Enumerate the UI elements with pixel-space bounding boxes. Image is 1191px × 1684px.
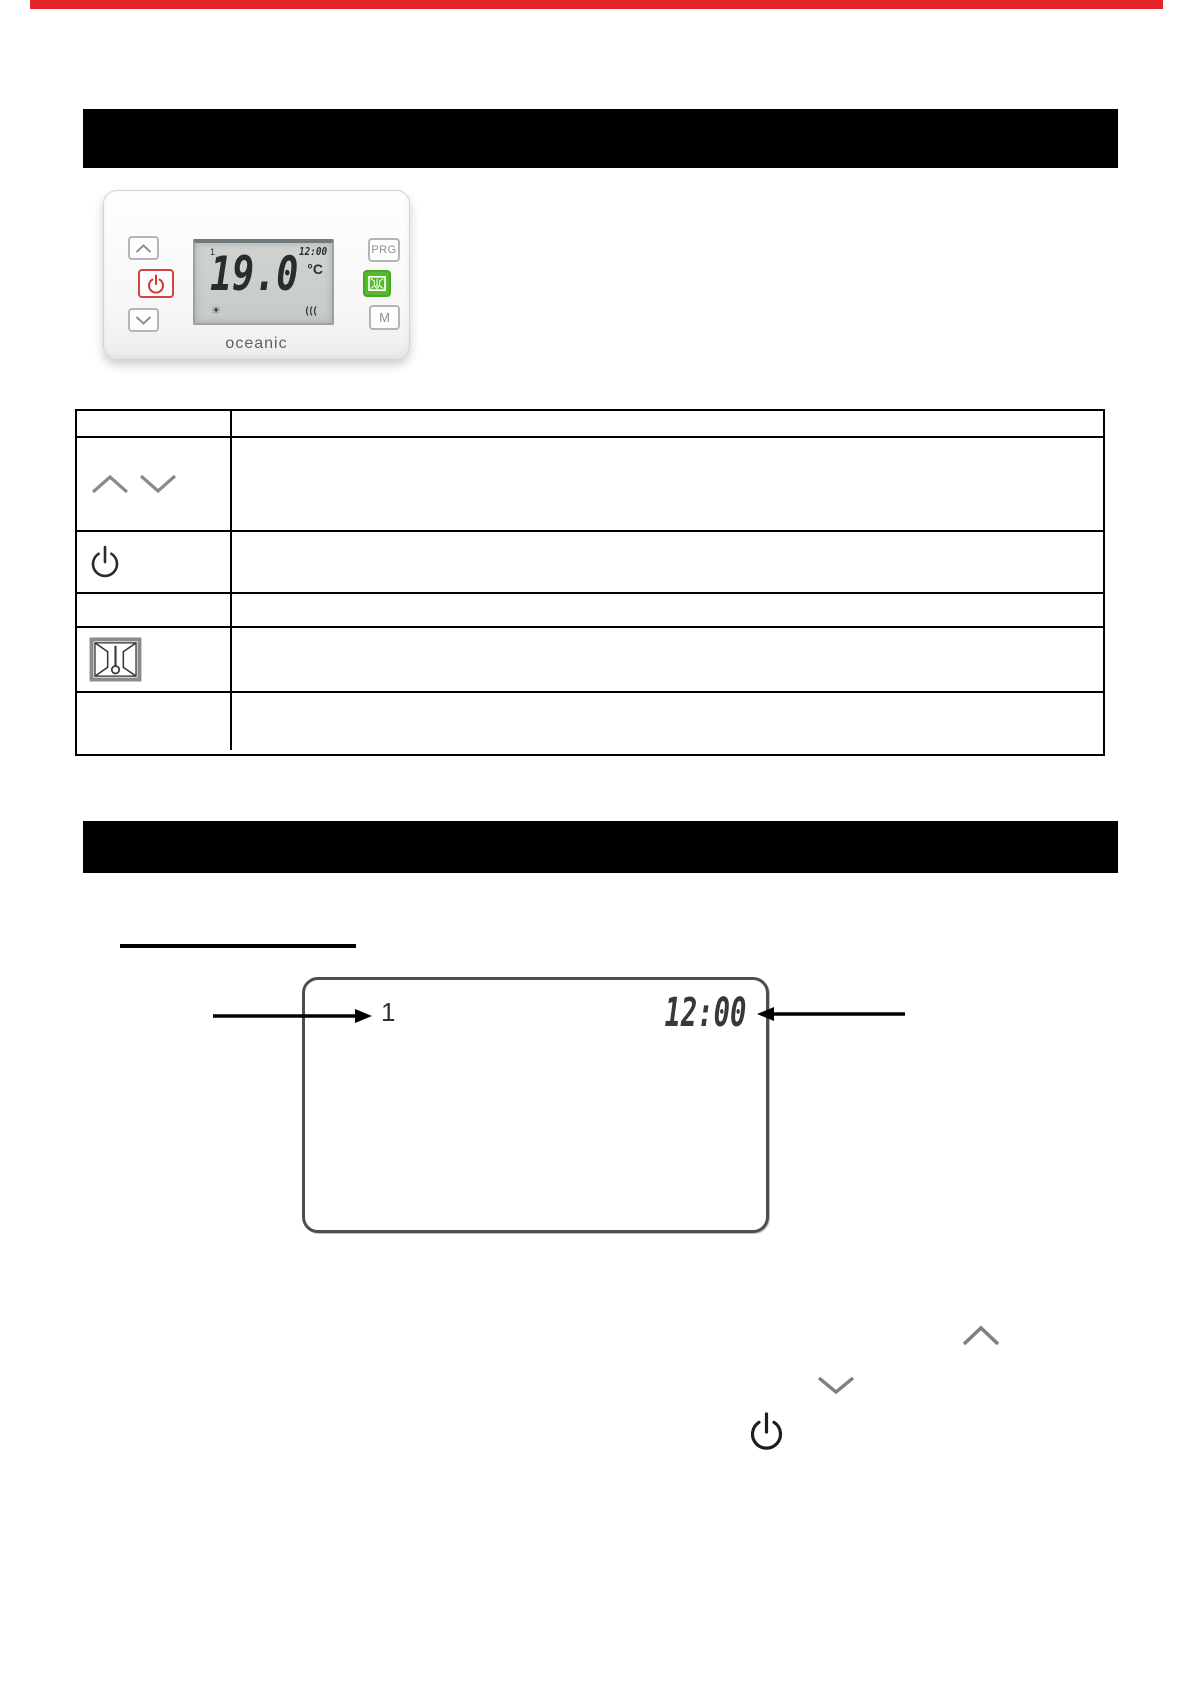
top-accent-bar	[30, 0, 1163, 9]
heating-indicator-icon	[305, 306, 318, 316]
table-row	[77, 438, 1103, 532]
device-down-button	[128, 308, 159, 332]
arrow-left-icon	[757, 1006, 905, 1022]
table-icon-cell	[77, 594, 232, 626]
thermostat-product-photo: 1 12:00 19.0 °C ☀ PRG M oceanic	[103, 190, 410, 360]
chevron-down-icon	[135, 316, 152, 325]
diagram-zone-indicator: 1	[381, 997, 395, 1028]
chevron-up-icon	[135, 244, 152, 253]
table-header-row	[77, 411, 1103, 438]
device-mode-button: M	[369, 305, 400, 330]
table-row	[77, 693, 1103, 750]
lcd-time: 12:00	[299, 246, 327, 257]
chevron-up-icon	[89, 471, 131, 497]
lcd-unit: °C	[307, 261, 323, 277]
floor-heating-icon	[368, 275, 386, 292]
device-comfort-button	[363, 270, 391, 297]
prg-button-label: PRG	[371, 244, 396, 256]
table-desc-cell	[234, 594, 1103, 626]
diagram-time: 12:00	[664, 993, 746, 1033]
table-header-icon-cell	[77, 411, 232, 436]
table-desc-cell	[234, 532, 1103, 592]
table-icon-cell	[77, 628, 232, 691]
mode-button-label: M	[379, 310, 390, 325]
lcd-temperature: 19.0	[210, 251, 298, 298]
table-header-desc-cell	[234, 411, 1103, 436]
manual-page: 1 12:00 19.0 °C ☀ PRG M oceanic	[0, 0, 1191, 1684]
table-desc-cell	[234, 693, 1103, 750]
table-icon-cell	[77, 693, 232, 750]
table-row	[77, 532, 1103, 594]
section-header-bar-2	[83, 821, 1118, 873]
buttons-table	[75, 409, 1105, 756]
floor-heating-icon	[89, 637, 142, 682]
arrow-right-icon	[213, 1008, 373, 1024]
sun-mode-icon: ☀	[211, 304, 221, 317]
device-prg-button: PRG	[368, 238, 400, 262]
brand-logo: oceanic	[104, 335, 409, 353]
table-icon-cell	[77, 532, 232, 592]
section-header-bar-1	[83, 109, 1118, 168]
device-lcd: 1 12:00 19.0 °C ☀	[193, 239, 334, 325]
power-icon	[89, 544, 121, 580]
power-icon	[748, 1410, 785, 1451]
chevron-down-icon	[816, 1375, 856, 1395]
device-up-button	[128, 236, 159, 260]
sub-heading-underline	[120, 944, 356, 948]
table-row	[77, 594, 1103, 628]
table-icon-cell	[77, 438, 232, 530]
table-row	[77, 628, 1103, 693]
chevron-up-icon	[961, 1324, 1001, 1347]
chevron-down-icon	[137, 471, 179, 497]
table-desc-cell	[234, 438, 1103, 530]
table-desc-cell	[234, 628, 1103, 691]
device-power-button	[138, 269, 174, 298]
power-icon	[147, 274, 165, 294]
